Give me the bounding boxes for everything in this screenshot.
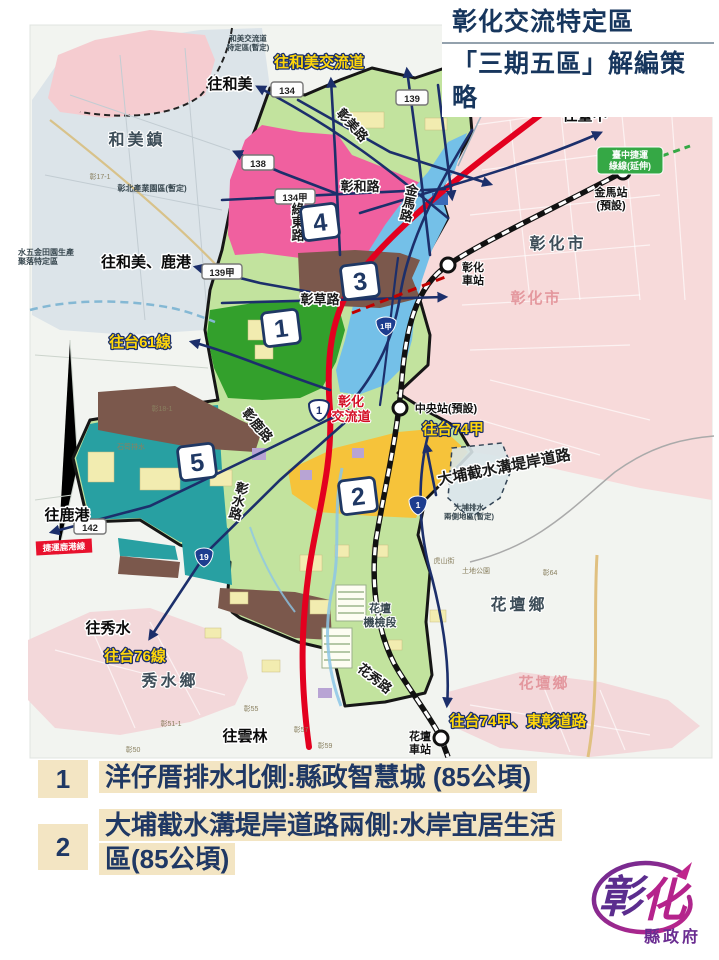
route-badge-138: 138 <box>250 159 266 170</box>
route-badge-139a: 139甲 <box>209 268 234 279</box>
town-label-hemei: 和美鎮 <box>108 130 165 149</box>
station-jinma-1: 金馬站 <box>594 185 628 199</box>
slide-title: 彰化交流特定區 「三期五區」解編策略 <box>442 2 714 117</box>
district-railyard-2: 機檢段 <box>364 615 397 629</box>
slide-title-line2: 「三期五區」解編策略 <box>442 44 714 118</box>
dir-tai74a: 往台74甲 <box>422 420 484 438</box>
dir-hemei-interchange: 往和美交流道 <box>274 53 364 71</box>
slide-page: 134 138 139 134甲 139甲 142 19 1甲 1 1 臺中捷運… <box>0 0 719 960</box>
road-label-changhe: 彰和路 <box>340 179 380 194</box>
micro-shigou: 石笱排水 <box>117 442 145 451</box>
changhua-county-logo: 彰 化 縣政府 <box>578 848 718 956</box>
micro-zhang64: 彰64 <box>543 568 558 577</box>
station-central: 中央站(預設) <box>415 401 478 415</box>
dir-hemei: 往和美 <box>207 75 253 93</box>
station-changhua-2: 車站 <box>462 273 484 287</box>
legend-number-2: 2 <box>38 824 88 870</box>
ic-changhua-2: 交流道 <box>331 409 370 424</box>
road-label-changcao: 彰草路 <box>300 292 340 307</box>
ic-changhua-1: 彰化 <box>338 394 364 409</box>
micro-tudigong: 土地公園 <box>462 566 490 575</box>
legend-text-2: 大埔截水溝堤岸道路兩側:水岸宜居生活區(85公頃) <box>99 809 562 875</box>
town-label-changhua-faded: 彰化市 <box>510 289 561 307</box>
metro-badge-line2: 綠線(延伸) <box>609 160 651 171</box>
micro-zhang59: 彰59 <box>318 741 333 750</box>
dir-hemei-lukang: 往和美、鹿港 <box>101 253 192 271</box>
micro-zhang50: 彰50 <box>126 745 141 754</box>
station-changhua-1: 彰化 <box>462 260 484 274</box>
shield-badge-1a: 1甲 <box>380 322 392 331</box>
district-dapu-1: 大埔排水 <box>454 502 484 512</box>
district-hemei-ic-2: 特定區(暫定) <box>227 42 270 52</box>
legend-number-1: 1 <box>38 760 88 798</box>
district-hardware-2: 聚落特定區 <box>17 256 58 266</box>
micro-zhang18: 彰18-1 <box>151 404 172 413</box>
interchange-shield-1: 1 <box>316 405 322 417</box>
dir-tai76: 往台76線 <box>104 647 166 665</box>
slide-title-line1: 彰化交流特定區 <box>442 2 714 44</box>
shield-badge-1: 1 <box>416 500 421 510</box>
station-huatan-1: 花壇 <box>409 729 431 743</box>
district-dapu-2: 兩側地區(暫定) <box>444 511 494 521</box>
micro-zhang17: 彰17-1 <box>89 172 110 181</box>
dir-xiushui: 往秀水 <box>85 619 131 637</box>
shield-badge-19: 19 <box>199 552 209 562</box>
route-badge-142: 142 <box>82 523 98 534</box>
metro-badge-line1: 臺中捷運 <box>612 149 648 160</box>
micro-zhang55: 彰55 <box>244 704 259 713</box>
district-changbei: 彰北產業園區(暫定) <box>117 183 187 193</box>
dir-tai61: 往台61線 <box>109 333 171 351</box>
district-hemei-ic-1: 和美交流道 <box>229 33 267 43</box>
route-badge-134: 134 <box>279 86 296 97</box>
town-label-huatan: 花壇鄉 <box>490 595 547 614</box>
micro-zhang57: 彰57 <box>294 725 309 734</box>
station-jinma-2: (預設) <box>596 198 626 212</box>
logo-subtitle: 縣政府 <box>644 927 701 946</box>
town-label-huatan-faded: 花壇鄉 <box>518 674 569 692</box>
town-label-xiushui: 秀水鄉 <box>140 671 198 690</box>
micro-zhang51: 彰51-1 <box>160 719 181 728</box>
micro-hushan: 虎山街 <box>434 556 455 565</box>
district-railyard-1: 花壇 <box>369 601 391 615</box>
station-huatan-2: 車站 <box>409 742 431 756</box>
dir-yunlin: 往雲林 <box>222 727 268 745</box>
dir-tai74a-dongchang: 往台74甲、東彰道路 <box>450 712 588 730</box>
logo-char2: 化 <box>640 874 692 926</box>
route-badge-139: 139 <box>404 94 420 105</box>
town-label-changhua: 彰化市 <box>529 234 586 253</box>
district-hardware-1: 水五金田園生產 <box>17 247 74 257</box>
dir-lukang: 往鹿港 <box>44 506 90 524</box>
legend-text-1: 洋仔厝排水北側:縣政智慧城 (85公頃) <box>99 761 537 793</box>
